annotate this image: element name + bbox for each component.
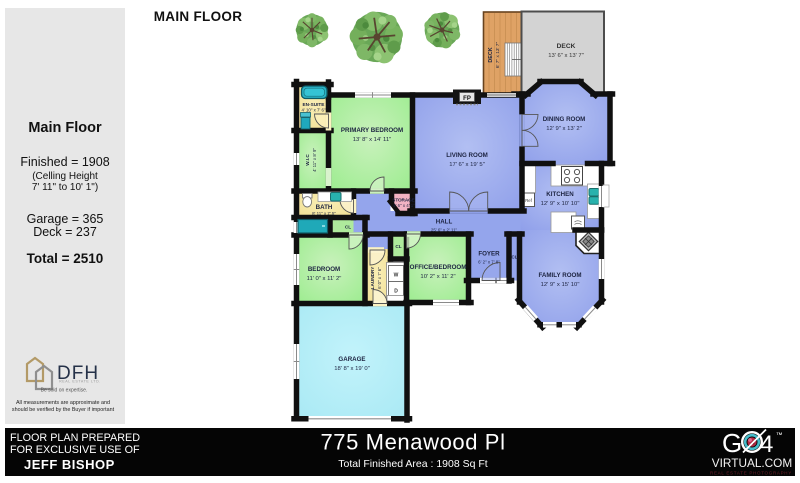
svg-text:™: ™ (776, 432, 783, 439)
svg-text:EN-SUITE: EN-SUITE (303, 102, 325, 107)
svg-text:Main Floor: Main Floor (28, 120, 102, 136)
svg-text:W: W (394, 273, 399, 279)
svg-text:should be verified by the Buye: should be verified by the Buyer if impor… (12, 407, 115, 413)
svg-text:FOR EXCLUSIVE USE OF: FOR EXCLUSIVE USE OF (10, 444, 140, 456)
svg-text:MAIN FLOOR: MAIN FLOOR (154, 9, 243, 24)
svg-text:10' 2" x 11' 2": 10' 2" x 11' 2" (420, 274, 455, 280)
svg-text:STORAGE: STORAGE (392, 198, 414, 203)
svg-text:13' 6" x 13' 7": 13' 6" x 13' 7" (548, 53, 584, 59)
svg-text:Total = 2510: Total = 2510 (27, 251, 104, 266)
svg-text:FAMILY ROOM: FAMILY ROOM (539, 272, 582, 279)
svg-text:JEFF BISHOP: JEFF BISHOP (24, 457, 115, 472)
svg-text:FP: FP (463, 96, 471, 102)
svg-text:PRIMARY BEDROOM: PRIMARY BEDROOM (341, 127, 403, 134)
svg-text:All measurements are approxima: All measurements are approximate and (16, 400, 110, 406)
svg-text:REAL ESTATE PHOTOGRAPHY: REAL ESTATE PHOTOGRAPHY (710, 471, 792, 476)
svg-text:CL: CL (511, 255, 517, 260)
svg-text:G: G (722, 428, 742, 458)
svg-text:Garage = 365: Garage = 365 (27, 212, 104, 226)
svg-text:18' 8" x 19' 0": 18' 8" x 19' 0" (334, 366, 370, 372)
svg-text:(Celling Height: (Celling Height (32, 171, 98, 182)
svg-text:4' 10" x 7' 6": 4' 10" x 7' 6" (301, 108, 326, 113)
svg-text:4' 6" x 4' 1": 4' 6" x 4' 1" (393, 203, 415, 208)
svg-text:REAL ESTATE LTD.: REAL ESTATE LTD. (59, 380, 101, 384)
svg-text:HALL: HALL (436, 219, 453, 226)
svg-text:BEDROOM: BEDROOM (308, 266, 340, 273)
svg-text:7' 11" to 10' 1"): 7' 11" to 10' 1") (32, 182, 98, 193)
svg-text:FLOOR PLAN PREPARED: FLOOR PLAN PREPARED (10, 432, 140, 444)
svg-text:4' 11" x 8' 9": 4' 11" x 8' 9" (312, 148, 317, 172)
svg-text:775 Menawood Pl: 775 Menawood Pl (320, 430, 505, 455)
svg-text:KITCHEN: KITCHEN (546, 191, 574, 198)
svg-text:8' 11" x 7' 5": 8' 11" x 7' 5" (312, 211, 336, 216)
svg-text:12' 9" x 10' 10": 12' 9" x 10' 10" (541, 201, 580, 207)
svg-text:DINING ROOM: DINING ROOM (543, 116, 586, 123)
svg-text:12' 9" x 15' 10": 12' 9" x 15' 10" (541, 282, 580, 288)
svg-text:W.I.C: W.I.C (305, 154, 310, 166)
svg-text:25' 6" x 2' 11": 25' 6" x 2' 11" (431, 228, 458, 233)
svg-text:6' 0" x 7' 6": 6' 0" x 7' 6" (377, 267, 382, 289)
svg-text:DECK: DECK (557, 43, 576, 50)
svg-text:DECK: DECK (488, 47, 494, 62)
svg-text:Total Finished Area : 1908 Sq: Total Finished Area : 1908 Sq Ft (338, 458, 488, 470)
svg-text:CL: CL (395, 244, 401, 249)
svg-text:Ref: Ref (525, 198, 532, 203)
svg-text:Finished = 1908: Finished = 1908 (20, 155, 109, 169)
svg-text:Deck = 237: Deck = 237 (33, 225, 97, 239)
svg-text:6' 2" x 7' 8": 6' 2" x 7' 8" (478, 260, 500, 265)
svg-text:GARAGE: GARAGE (338, 356, 365, 363)
svg-text:BATH: BATH (316, 204, 333, 211)
svg-text:4: 4 (760, 431, 773, 458)
svg-text:11' 0" x 11' 2": 11' 0" x 11' 2" (307, 276, 342, 282)
svg-text:Be sold on expertise.: Be sold on expertise. (41, 388, 88, 394)
svg-text:OFFICE/BEDROOM: OFFICE/BEDROOM (410, 264, 467, 271)
svg-text:CL: CL (345, 225, 351, 230)
svg-text:VIRTUAL.COM: VIRTUAL.COM (712, 456, 792, 470)
svg-text:13' 8" x 14' 11": 13' 8" x 14' 11" (353, 137, 391, 143)
svg-text:D: D (394, 289, 398, 295)
svg-text:LAUNDRY: LAUNDRY (370, 266, 375, 290)
svg-text:FOYER: FOYER (478, 251, 500, 258)
svg-text:17' 6" x 19' 5": 17' 6" x 19' 5" (449, 162, 485, 168)
svg-text:12' 9" x 13' 2": 12' 9" x 13' 2" (546, 126, 582, 132)
svg-text:LIVING ROOM: LIVING ROOM (446, 152, 488, 159)
svg-text:6' 7" x 13' 7": 6' 7" x 13' 7" (495, 42, 501, 69)
